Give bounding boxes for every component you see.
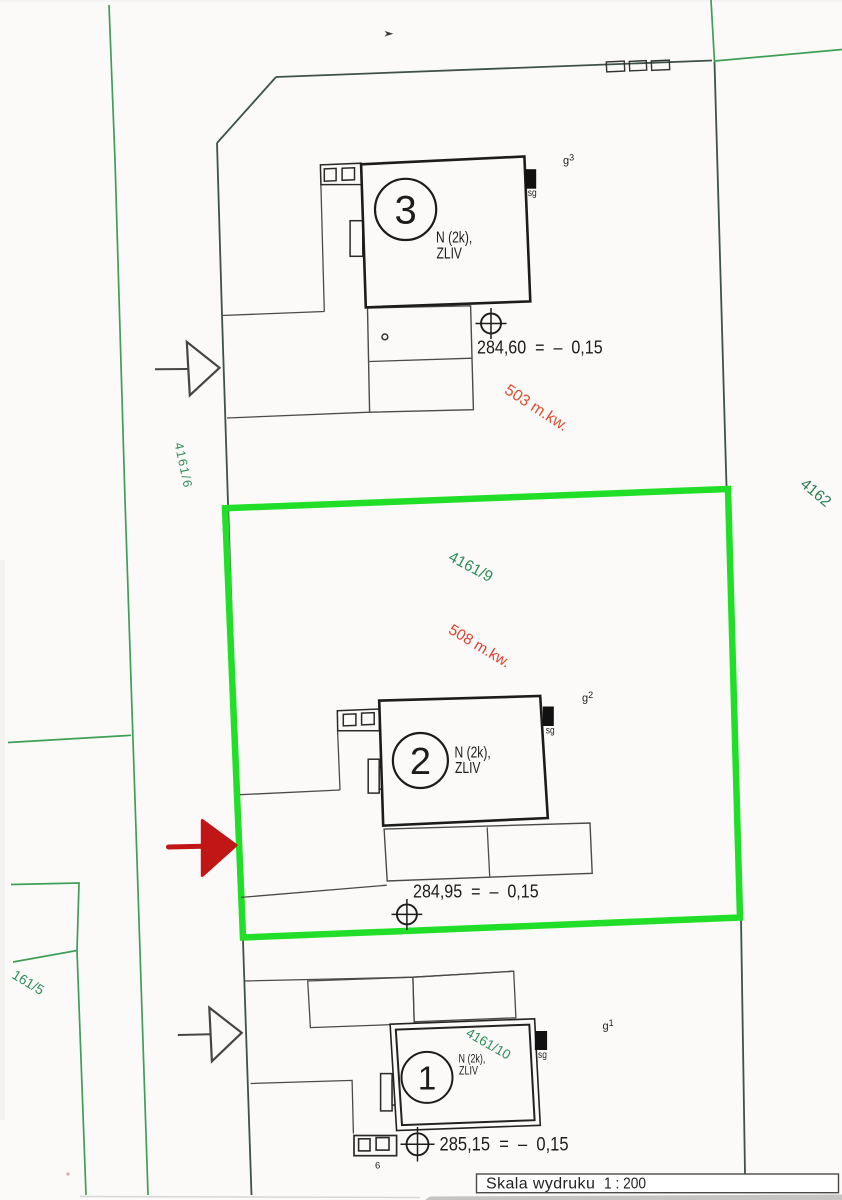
svg-text:ZLIV: ZLIV xyxy=(437,244,463,262)
svg-text:284,95 = – 0,15: 284,95 = – 0,15 xyxy=(413,880,539,901)
svg-text:Skala wydruku: Skala wydruku xyxy=(486,1176,595,1193)
svg-text:1: 1 xyxy=(418,1060,436,1097)
svg-text:6: 6 xyxy=(375,1161,380,1172)
svg-text:sg: sg xyxy=(538,1049,547,1061)
svg-text:ZLIV: ZLIV xyxy=(459,1066,478,1078)
svg-text:285,15 = – 0,15: 285,15 = – 0,15 xyxy=(440,1133,569,1154)
svg-text:1 : 200: 1 : 200 xyxy=(604,1175,646,1193)
svg-text:ZLIV: ZLIV xyxy=(455,759,481,777)
svg-text:sg: sg xyxy=(546,725,555,737)
svg-text:sg: sg xyxy=(528,187,537,199)
svg-text:2: 2 xyxy=(410,741,431,783)
svg-text:284,60 = – 0,15: 284,60 = – 0,15 xyxy=(477,336,603,357)
svg-text:N (2k),: N (2k), xyxy=(459,1054,486,1066)
svg-text:3: 3 xyxy=(394,189,416,233)
